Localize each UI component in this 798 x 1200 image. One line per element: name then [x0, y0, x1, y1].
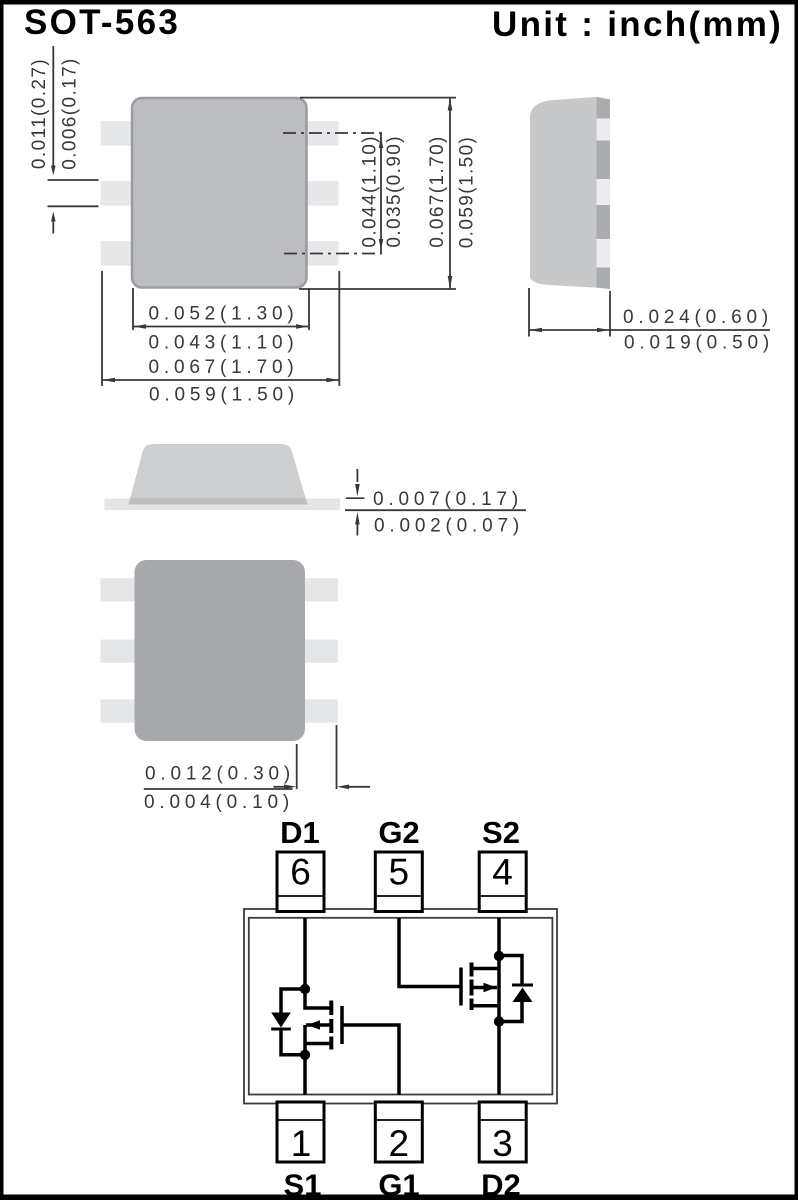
svg-text:5: 5	[389, 852, 410, 893]
svg-text:S2: S2	[482, 815, 520, 850]
svg-text:SOT-563: SOT-563	[24, 3, 180, 42]
svg-text:0.006(0.17): 0.006(0.17)	[60, 57, 81, 170]
svg-text:Unit : inch(mm): Unit : inch(mm)	[492, 5, 783, 44]
svg-text:1: 1	[291, 1123, 312, 1164]
svg-text:0.012(0.30): 0.012(0.30)	[145, 764, 295, 785]
svg-text:0.002(0.07): 0.002(0.07)	[374, 516, 524, 537]
svg-text:0.067(1.70): 0.067(1.70)	[149, 357, 299, 378]
svg-text:2: 2	[389, 1123, 410, 1164]
svg-text:0.059(1.50): 0.059(1.50)	[457, 136, 478, 249]
svg-text:3: 3	[492, 1123, 513, 1164]
svg-text:G1: G1	[378, 1168, 419, 1200]
svg-text:S1: S1	[284, 1168, 322, 1200]
svg-text:0.044(1.10): 0.044(1.10)	[360, 135, 381, 248]
svg-text:0.059(1.50): 0.059(1.50)	[149, 385, 299, 406]
svg-text:6: 6	[290, 852, 311, 893]
svg-text:0.043(1.10): 0.043(1.10)	[149, 333, 299, 354]
svg-text:0.024(0.60): 0.024(0.60)	[623, 307, 773, 328]
svg-text:0.035(0.90): 0.035(0.90)	[384, 135, 405, 248]
svg-text:D1: D1	[280, 815, 320, 850]
svg-text:G2: G2	[378, 815, 419, 850]
svg-text:0.019(0.50): 0.019(0.50)	[624, 333, 774, 354]
svg-text:0.067(1.70): 0.067(1.70)	[427, 135, 448, 248]
svg-text:0.007(0.17): 0.007(0.17)	[373, 489, 523, 510]
svg-text:D2: D2	[481, 1168, 521, 1200]
svg-text:4: 4	[492, 852, 513, 893]
svg-text:0.011(0.27): 0.011(0.27)	[29, 58, 50, 169]
svg-text:0.004(0.10): 0.004(0.10)	[144, 792, 294, 813]
svg-text:0.052(1.30): 0.052(1.30)	[149, 304, 299, 325]
